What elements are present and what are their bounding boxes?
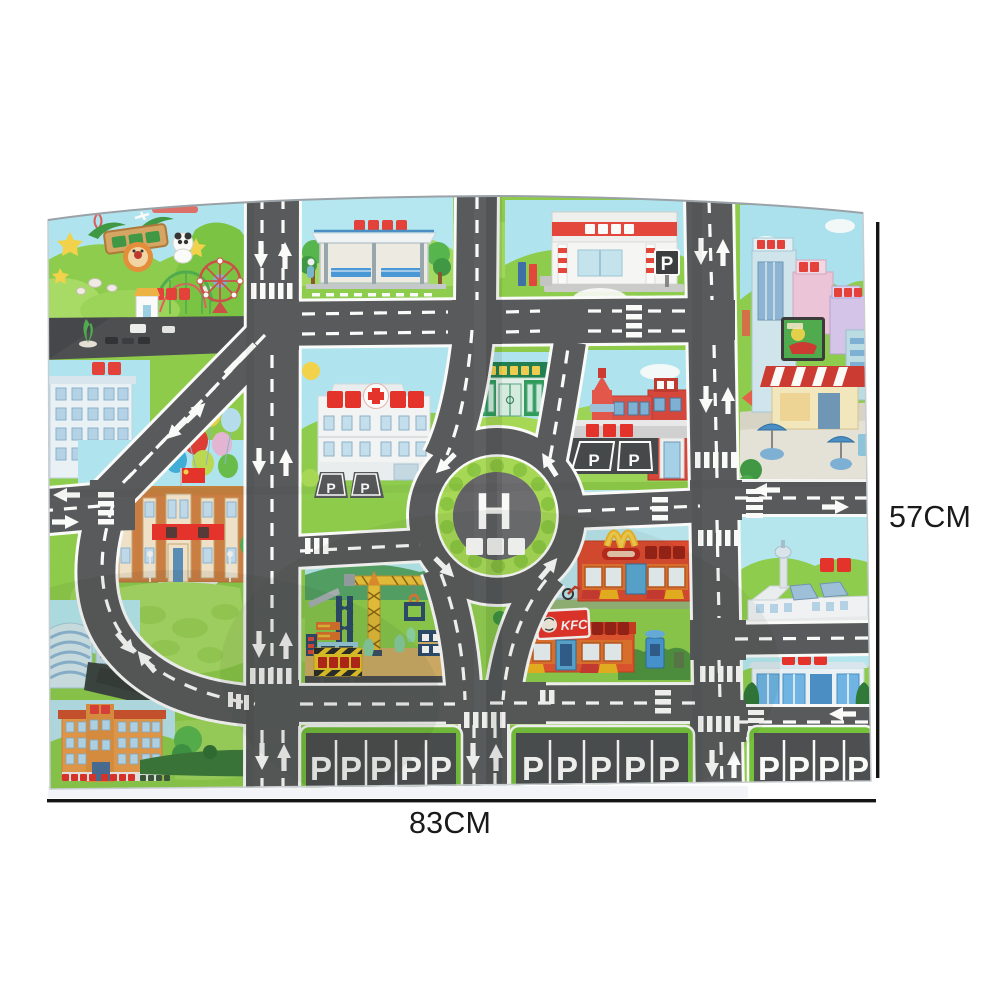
svg-text:83CM: 83CM (409, 806, 491, 840)
svg-text:57CM: 57CM (889, 500, 971, 534)
